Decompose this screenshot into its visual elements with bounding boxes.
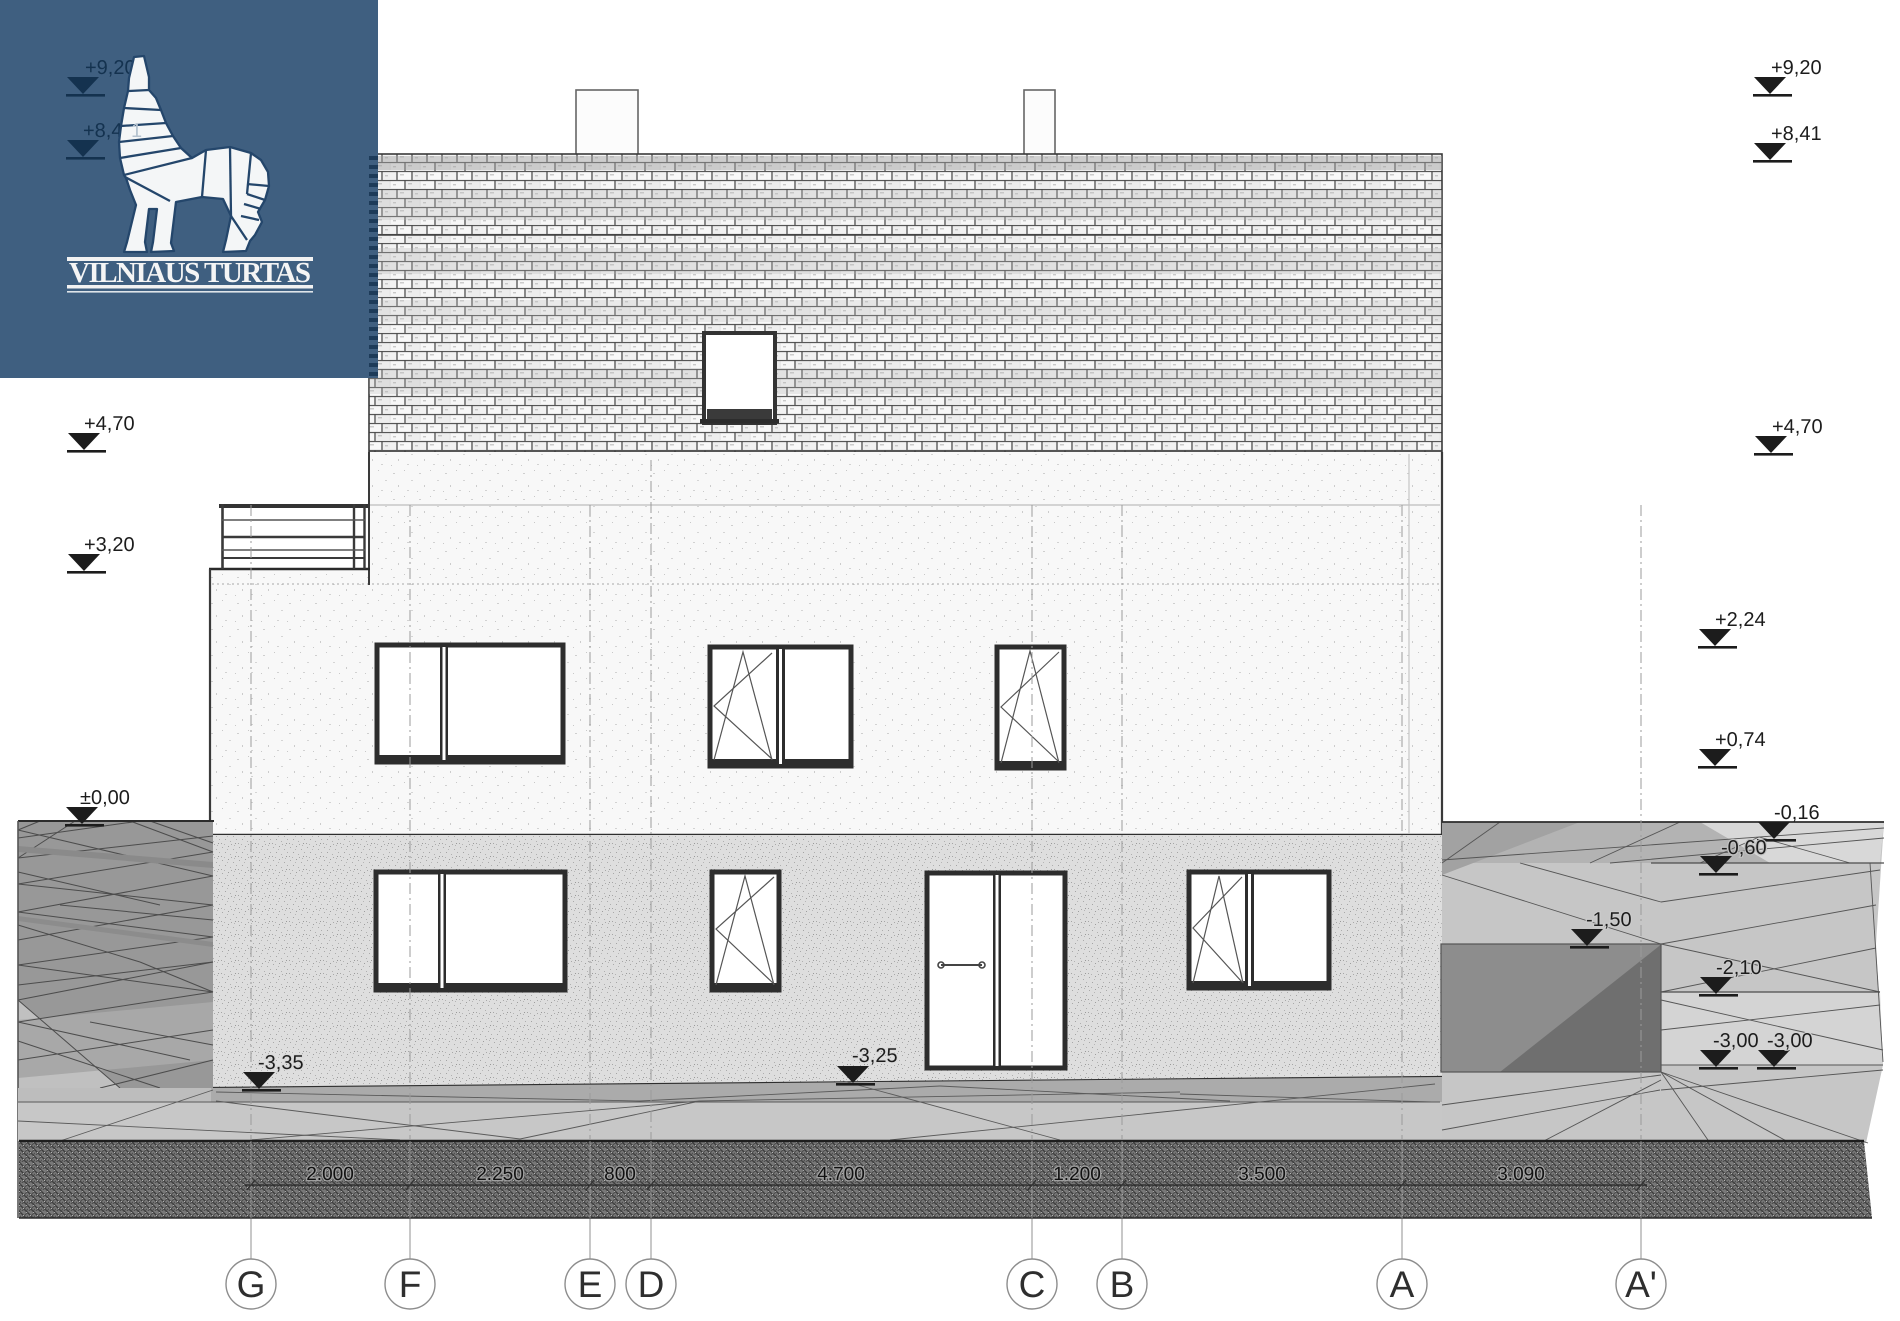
- svg-text:-2,10: -2,10: [1716, 957, 1762, 979]
- svg-text:D: D: [638, 1264, 665, 1305]
- svg-text:+9,20: +9,20: [85, 57, 136, 79]
- svg-text:-1,50: -1,50: [1586, 909, 1632, 931]
- svg-text:+8,41: +8,41: [1771, 123, 1822, 145]
- svg-text:C: C: [1019, 1264, 1046, 1305]
- svg-text:±0,00: ±0,00: [80, 787, 130, 809]
- svg-text:-0,60: -0,60: [1721, 837, 1767, 859]
- svg-text:+2,24: +2,24: [1715, 609, 1766, 631]
- svg-text:+4,70: +4,70: [1772, 416, 1823, 438]
- svg-text:-0,16: -0,16: [1774, 802, 1820, 824]
- svg-text:1.200: 1.200: [1053, 1164, 1101, 1185]
- svg-text:F: F: [399, 1264, 422, 1305]
- svg-text:A': A': [1625, 1264, 1657, 1305]
- svg-text:+3,20: +3,20: [84, 534, 135, 556]
- svg-text:2.000: 2.000: [306, 1164, 354, 1185]
- svg-text:+0,74: +0,74: [1715, 729, 1766, 751]
- svg-text:1: 1: [131, 120, 142, 142]
- svg-text:G: G: [237, 1264, 266, 1305]
- svg-text:+9,20: +9,20: [1771, 57, 1822, 79]
- svg-text:2.250: 2.250: [476, 1164, 524, 1185]
- svg-text:3.090: 3.090: [1497, 1164, 1545, 1185]
- svg-text:-3,00: -3,00: [1767, 1030, 1813, 1052]
- svg-text:VILNIAUS TURTAS: VILNIAUS TURTAS: [69, 257, 311, 289]
- svg-text:800: 800: [604, 1164, 636, 1185]
- svg-text:-3,35: -3,35: [258, 1052, 304, 1074]
- svg-text:B: B: [1110, 1264, 1135, 1305]
- svg-text:-3,25: -3,25: [852, 1045, 898, 1067]
- svg-text:-3,00: -3,00: [1713, 1030, 1759, 1052]
- svg-text:3.500: 3.500: [1238, 1164, 1286, 1185]
- svg-text:A: A: [1390, 1264, 1415, 1305]
- svg-text:E: E: [578, 1264, 603, 1305]
- svg-text:+4,70: +4,70: [84, 413, 135, 435]
- svg-text:4.700: 4.700: [817, 1164, 865, 1185]
